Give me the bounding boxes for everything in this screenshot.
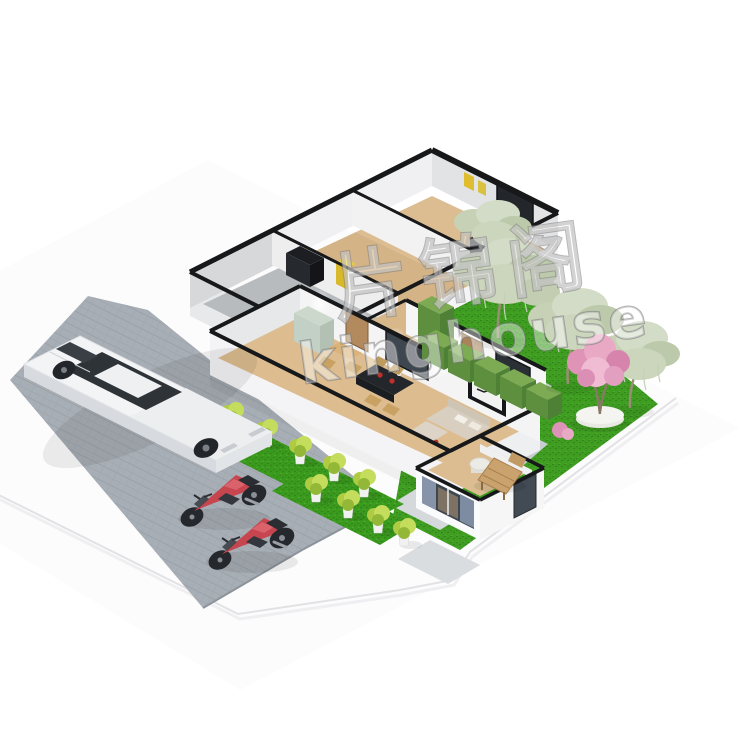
product-image-3d-floorplan: 片锦阁 kinghouse: [0, 0, 750, 750]
render-scene: 片锦阁 kinghouse: [0, 0, 750, 750]
